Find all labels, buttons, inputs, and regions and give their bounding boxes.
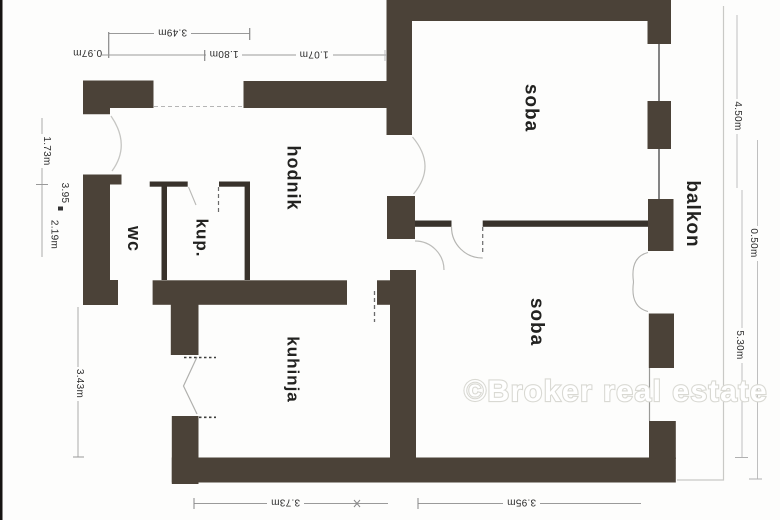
svg-text:kuhinja: kuhinja <box>284 336 303 403</box>
svg-text:0.97m: 0.97m <box>73 47 102 58</box>
svg-text:hodnik: hodnik <box>284 146 304 211</box>
svg-text:1.73m: 1.73m <box>41 136 52 165</box>
svg-text:soba: soba <box>521 84 542 132</box>
svg-text:1.07m: 1.07m <box>299 49 328 60</box>
svg-text:2.19m: 2.19m <box>49 220 60 249</box>
svg-text:3.49m: 3.49m <box>158 27 187 38</box>
svg-text:wc: wc <box>124 225 144 252</box>
svg-text:kup.: kup. <box>193 219 212 258</box>
svg-text:0.50m: 0.50m <box>748 228 759 257</box>
svg-text:3.43m: 3.43m <box>74 369 85 398</box>
svg-text:4.50m: 4.50m <box>732 101 743 130</box>
svg-text:3.73m: 3.73m <box>271 497 300 508</box>
svg-text:balkon: balkon <box>682 180 703 247</box>
svg-text:soba: soba <box>526 298 547 346</box>
svg-text:5.30m: 5.30m <box>734 330 745 359</box>
svg-text:©Broker real estate: ©Broker real estate <box>464 375 768 408</box>
svg-text:3.95m: 3.95m <box>507 497 536 508</box>
svg-text:1.80m: 1.80m <box>209 48 238 59</box>
svg-text:3.95: 3.95 <box>59 183 70 204</box>
